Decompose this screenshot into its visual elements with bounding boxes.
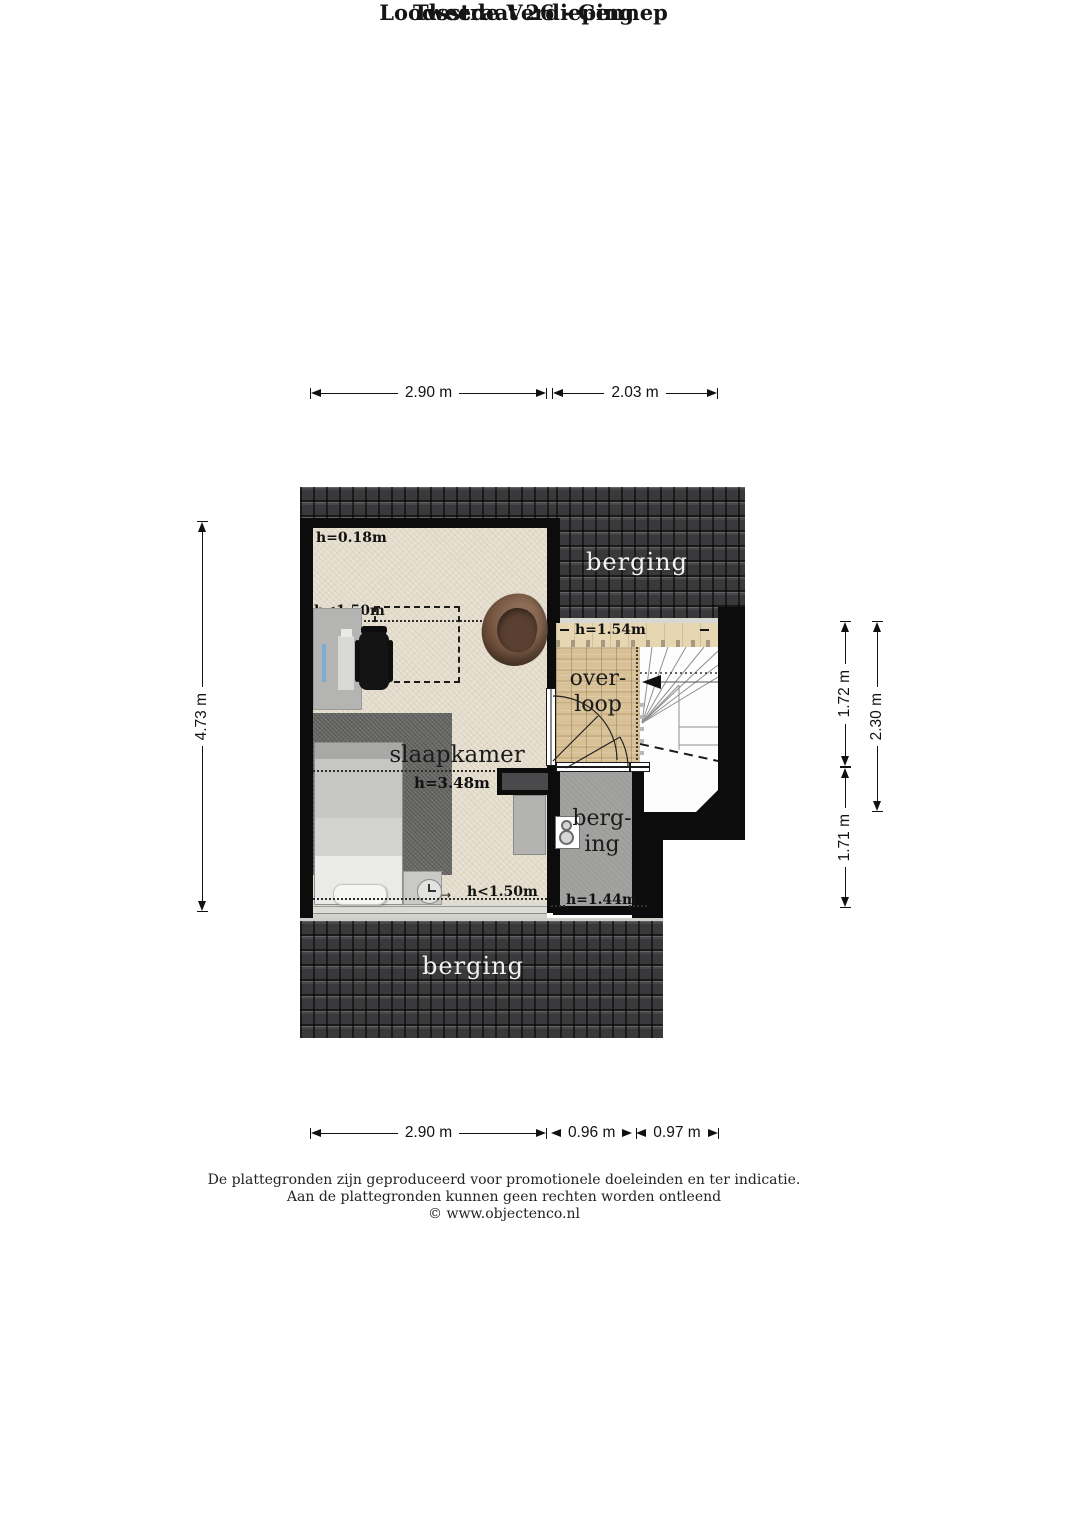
dim-arrow-left [636, 1129, 646, 1137]
height-note-bottom: h<1.50m [467, 884, 538, 900]
wall-bottom-lowband [313, 903, 547, 918]
dim-line [877, 746, 878, 801]
dim-line [202, 532, 203, 687]
chimney-flue [502, 773, 548, 790]
height-note-top-left: h=0.18m [316, 530, 387, 546]
dim-arrow-down [841, 756, 849, 766]
dim-label: 2.03 m [604, 384, 665, 402]
dim-arrow-up [841, 768, 849, 778]
dim-arrow-left [311, 1129, 321, 1137]
footer-disclaimer-line2: Aan de plattegronden kunnen geen rechten… [0, 1189, 1008, 1205]
dim-tick [717, 388, 718, 399]
height-marker-dash [700, 629, 709, 631]
dim-arrow-up [873, 622, 881, 632]
desk-pen [322, 644, 326, 682]
dim-label: 0.96 m [561, 1124, 622, 1142]
door-swing-arc [620, 737, 628, 768]
wall-step-bar [632, 812, 745, 840]
height-note-slaapkamer: h=3.48m [402, 774, 502, 792]
wall-outer-right [718, 607, 745, 840]
dim-arrow-right [622, 1129, 632, 1137]
clock-hand [429, 890, 436, 892]
dim-line [877, 632, 878, 687]
dim-arrow-left [551, 1129, 561, 1137]
dimension-bottom-bedroom: 2.90 m [310, 1125, 547, 1141]
dresser [513, 795, 546, 855]
berging-height-dotted-line [551, 905, 565, 907]
dim-line [202, 746, 203, 901]
office-chair-seat [359, 632, 389, 690]
desk-paper [338, 636, 354, 690]
dim-tick [872, 811, 883, 812]
dim-arrow-right [536, 1129, 546, 1137]
dim-line [321, 1133, 398, 1134]
room-label-berging-klein-line1: berg- [572, 806, 632, 832]
stairs-drawing [640, 647, 718, 812]
height-note-berging-klein: h=1.44m [566, 892, 637, 908]
dimension-top-bedroom: 2.90 m [310, 385, 547, 401]
dim-line [845, 778, 846, 808]
dimension-top-stairs: 2.03 m [552, 385, 718, 401]
room-label-slaapkamer: slaapkamer [382, 742, 532, 768]
dim-tick [840, 907, 851, 908]
dim-arrow-down [873, 801, 881, 811]
room-label-berging-top: berging [556, 548, 718, 576]
dim-line [845, 632, 846, 664]
dim-label: 0.97 m [646, 1124, 707, 1142]
pillow [333, 884, 387, 905]
dimension-right-berging: 1.71 m [837, 767, 853, 908]
dimension-left-bedroom: 4.73 m [194, 521, 210, 912]
room-label-berging-klein-line2: ing [572, 832, 632, 858]
wall-left [300, 518, 313, 918]
door-leaf [566, 737, 620, 768]
dim-line [666, 393, 707, 394]
dimension-right-stairs: 2.30 m [869, 621, 885, 812]
dimension-bottom-berging: 0.96 m [551, 1125, 632, 1141]
dim-arrow-left [311, 389, 321, 397]
dim-line [459, 393, 536, 394]
dim-tick [546, 388, 547, 399]
dim-line [845, 867, 846, 897]
wall-top [300, 518, 560, 528]
footer-copyright: © www.objectenco.nl [0, 1206, 1008, 1222]
floorplan-page: Loodsstraat 26 - Gennep Tweede Verdiepin… [0, 0, 1080, 1527]
dim-arrow-down [198, 901, 206, 911]
dim-arrow-right [708, 1129, 718, 1137]
office-chair-armrest [388, 640, 393, 682]
height-marker-dash [560, 629, 569, 631]
footer-disclaimer-line1: De plattegronden zijn geproduceerd voor … [0, 1172, 1008, 1188]
dim-arrow-down [841, 897, 849, 907]
dim-arrow-up [198, 522, 206, 532]
dim-line [563, 393, 604, 394]
dim-tick [546, 1128, 547, 1139]
dimension-right-overloop: 1.72 m [837, 621, 853, 767]
dim-arrow-up [841, 622, 849, 632]
dim-label: 2.30 m [868, 687, 886, 746]
dim-label: 2.90 m [398, 384, 459, 402]
door-swing-arcs [546, 640, 650, 775]
room-label-berging-klein: berg- ing [572, 806, 632, 858]
page-title-floor: Tweede Verdieping [0, 0, 1047, 25]
dim-arrow-right [707, 389, 717, 397]
dim-line [845, 724, 846, 756]
wall-corner-cut [696, 790, 718, 812]
dim-line [459, 1133, 536, 1134]
dim-arrow-left [553, 389, 563, 397]
dim-label: 1.72 m [836, 664, 854, 723]
berging-height-dotted-line [629, 905, 647, 907]
door-swing-arc [553, 696, 617, 760]
office-chair-armrest [355, 640, 360, 682]
room-label-berging-bottom: berging [392, 952, 554, 980]
stair-treads [642, 647, 718, 750]
dim-tick [197, 911, 208, 912]
height-note-overloop: h=1.54m [575, 622, 646, 638]
dim-label: 4.73 m [193, 687, 211, 746]
desk-item [341, 629, 352, 637]
dim-arrow-right [536, 389, 546, 397]
dim-label: 2.90 m [398, 1124, 459, 1142]
bed-duvet-fold [315, 818, 402, 856]
dimension-bottom-stairs: 0.97 m [636, 1125, 718, 1141]
dim-label: 1.71 m [836, 808, 854, 867]
door-leaf [553, 716, 598, 761]
dim-line [321, 393, 398, 394]
